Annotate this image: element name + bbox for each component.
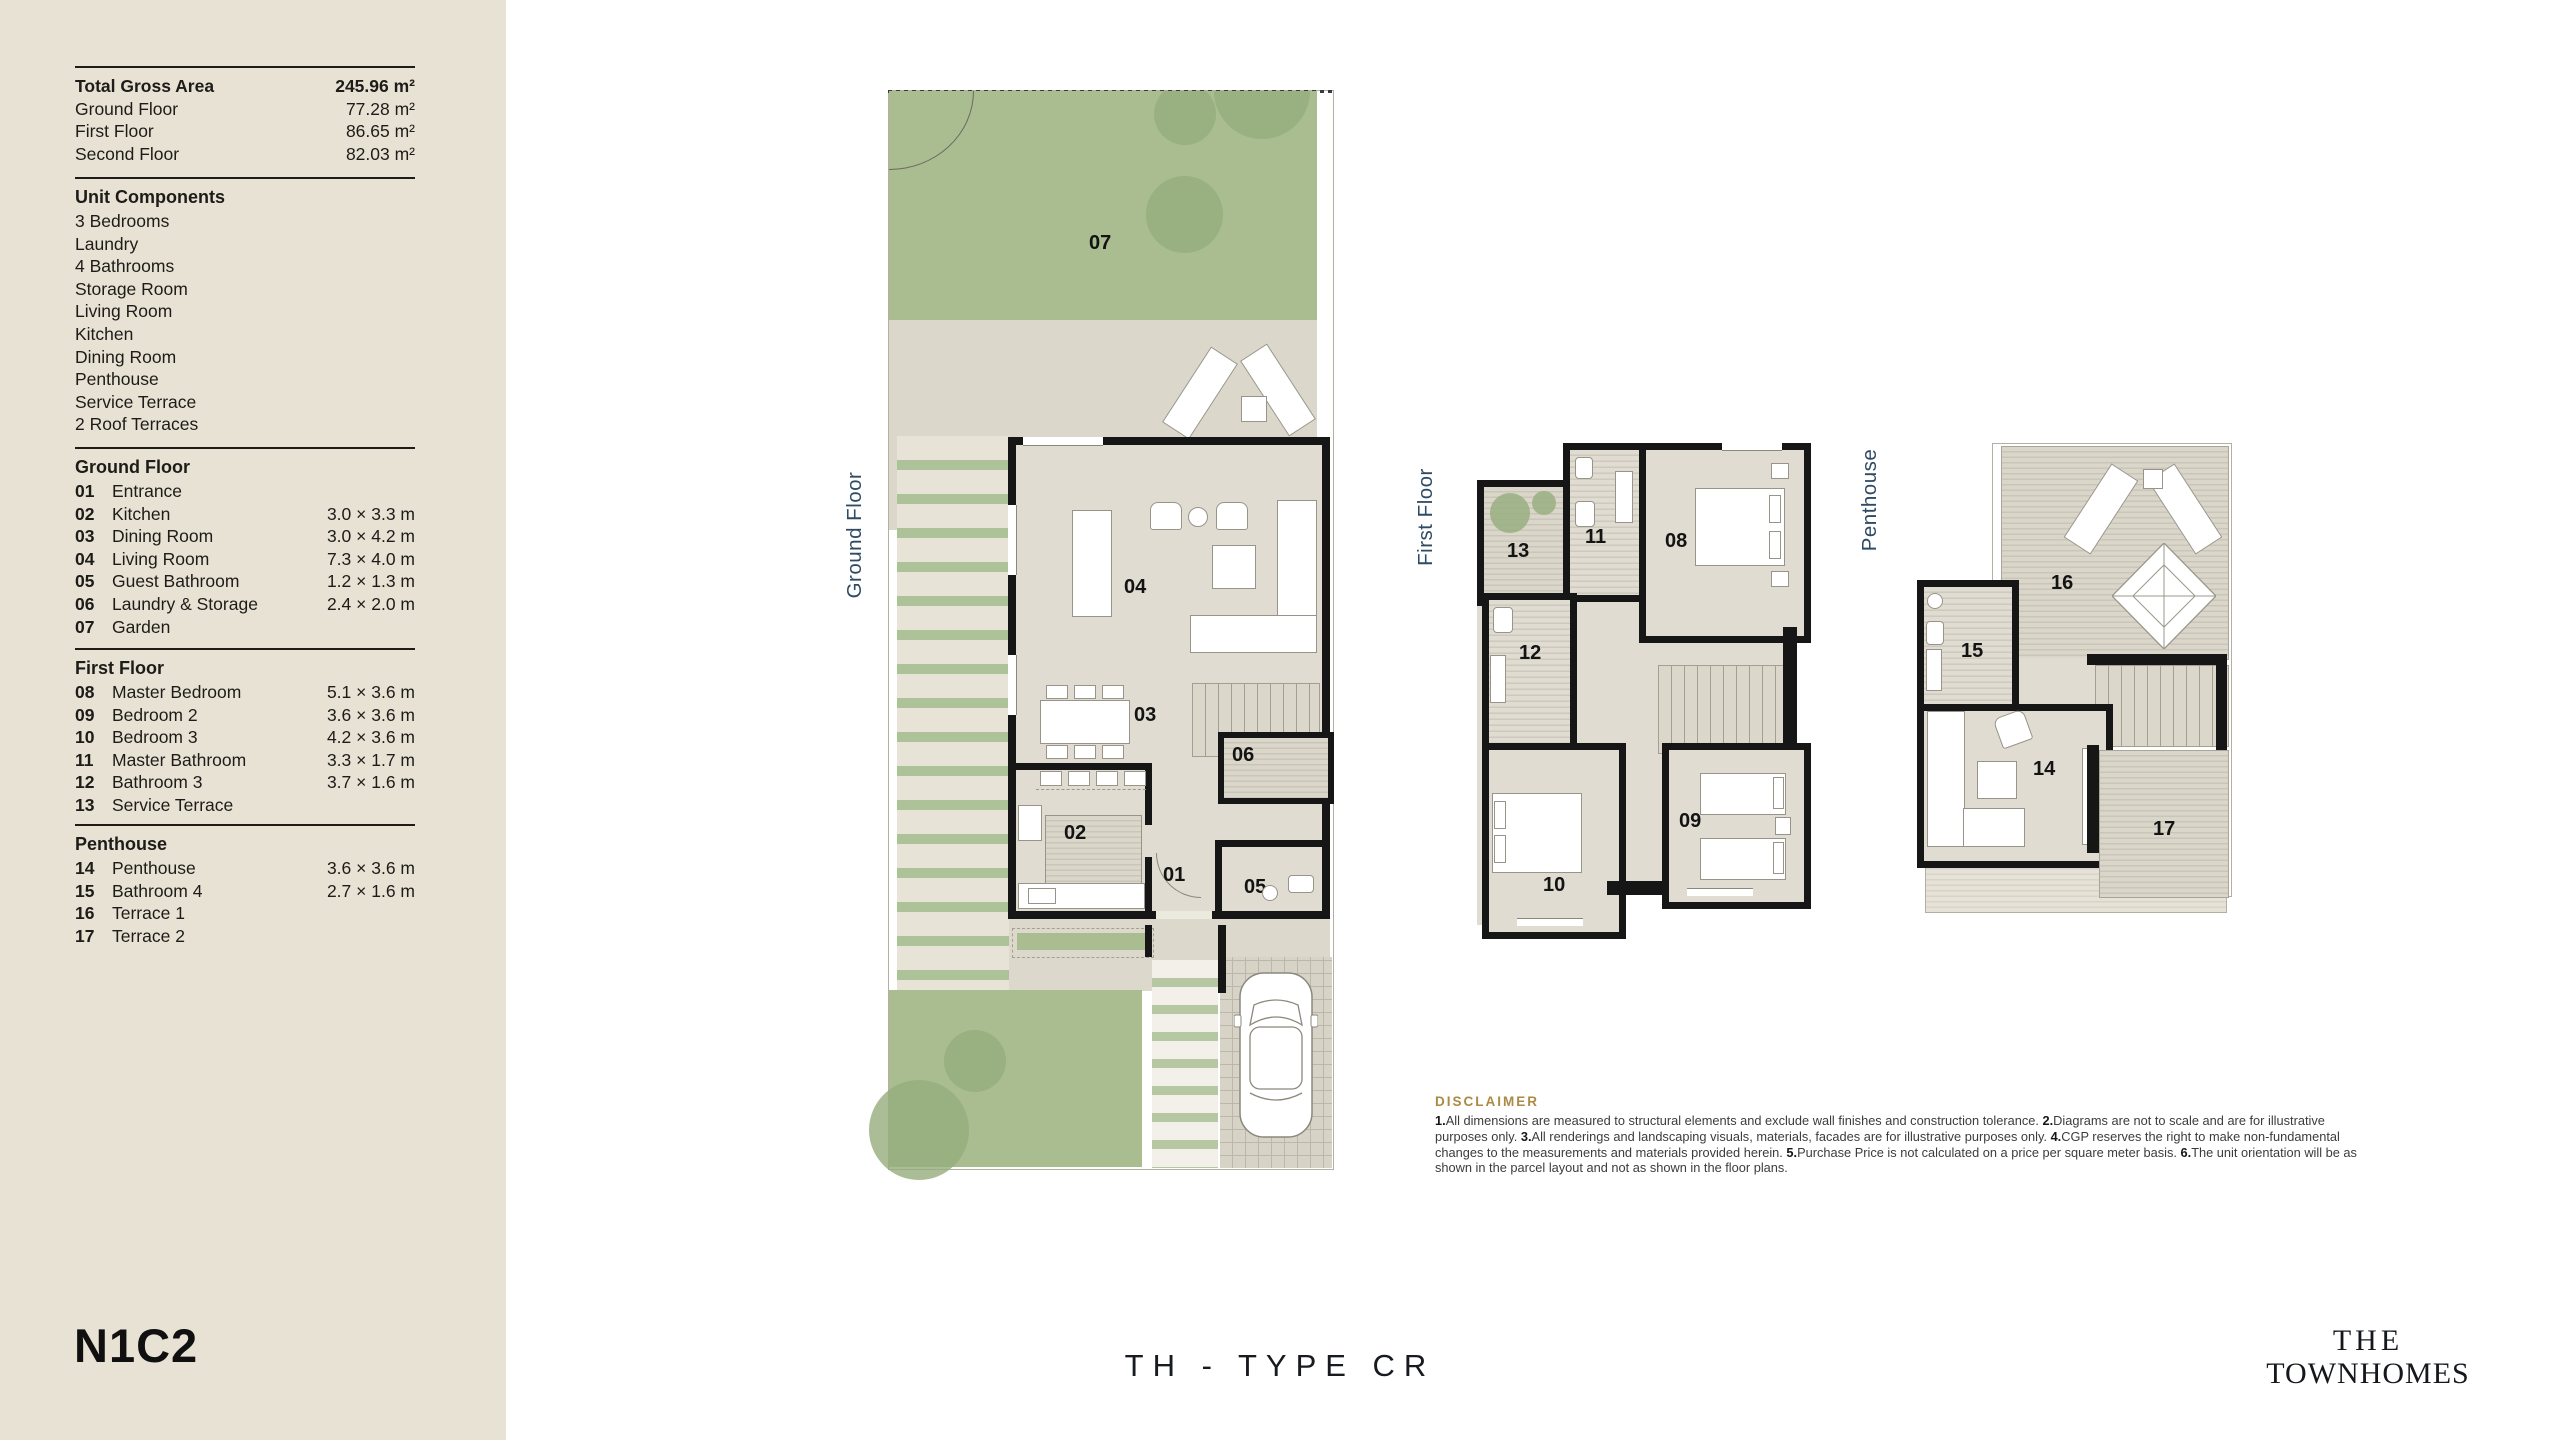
room-number-service-terrace: 13 [1507, 541, 1529, 561]
dining-chair [1074, 745, 1096, 759]
bar-stool [1068, 771, 1090, 786]
bar-stool [1124, 771, 1146, 786]
pillow [1773, 842, 1784, 874]
unit-type-label: TH - TYPE CR [1030, 1348, 1530, 1384]
dining-chair [1046, 685, 1068, 699]
room-number-master-bath: 11 [1585, 527, 1606, 547]
unit-code: N1C2 [74, 1318, 198, 1373]
room-name: Garden [112, 616, 407, 639]
room-name: Service Terrace [112, 794, 407, 817]
room-dims: 3.0 × 3.3 m [327, 503, 415, 526]
room-number-bathroom3: 12 [1519, 643, 1541, 663]
component-item: 4 Bathrooms [75, 255, 415, 278]
room-dims: 3.0 × 4.2 m [327, 525, 415, 548]
bar-stool [1096, 771, 1118, 786]
tree [944, 1030, 1006, 1092]
patio-table [1241, 396, 1267, 422]
stair-wall [1783, 627, 1797, 749]
room-name: Bathroom 4 [112, 880, 319, 903]
bath-wall [1215, 840, 1322, 847]
penthouse-plan: 16 15 14 17 [1917, 443, 2230, 913]
area-value: 245.96 m² [335, 75, 415, 98]
brand-logo: THE TOWNHOMES [2243, 1324, 2493, 1390]
brochure-page: Total Gross Area 245.96 m² Ground Floor … [0, 0, 2560, 1440]
disclaimer-item-number: 1. [1435, 1113, 1446, 1128]
pillow [1773, 777, 1784, 809]
window-gap [1517, 918, 1583, 926]
room-number: 09 [75, 704, 112, 727]
room-number-terrace1: 16 [2051, 573, 2073, 593]
room-number: 12 [75, 771, 112, 794]
armchair [1216, 502, 1248, 530]
chaise-sofa [1072, 510, 1112, 617]
room-row: 04Living Room7.3 × 4.0 m [75, 548, 415, 571]
planter-green [1017, 933, 1146, 950]
area-value: 82.03 m² [346, 143, 415, 166]
disclaimer-item-number: 2. [2042, 1113, 2053, 1128]
plant [1532, 491, 1556, 515]
coffee-table [1977, 761, 2017, 799]
room-number: 01 [75, 480, 112, 503]
room-number-master-bedroom: 08 [1665, 531, 1687, 551]
room-dims: 3.6 × 3.6 m [327, 704, 415, 727]
armchair [1150, 502, 1182, 530]
component-item: Kitchen [75, 323, 415, 346]
coffee-table [1212, 545, 1256, 589]
patio-table [2143, 469, 2163, 489]
room-number-garden: 07 [1089, 233, 1111, 253]
room-dims: 2.4 × 2.0 m [327, 593, 415, 616]
tree [1154, 91, 1216, 145]
vanity [1615, 471, 1633, 523]
window-gap [1023, 437, 1103, 446]
l-sofa-horizontal [1190, 615, 1317, 653]
window-gap [1687, 888, 1753, 896]
nightstand [1775, 817, 1791, 835]
room-number-bathroom4: 15 [1961, 641, 1983, 661]
pergola [2112, 543, 2216, 649]
room-number: 06 [75, 593, 112, 616]
room-dims: 3.6 × 3.6 m [327, 857, 415, 880]
room-number: 04 [75, 548, 112, 571]
component-item: 3 Bedrooms [75, 210, 415, 233]
tree [1146, 176, 1223, 253]
disclaimer-item-number: 5. [1786, 1145, 1797, 1160]
dining-table [1040, 700, 1130, 744]
room-name: Laundry & Storage [112, 593, 319, 616]
side-path-stripes [897, 436, 1009, 990]
kitchen-wall [1145, 857, 1152, 911]
bath-wall [1215, 847, 1222, 911]
sink [1028, 888, 1056, 904]
basin [1262, 885, 1278, 901]
room-number: 13 [75, 794, 112, 817]
house-ground: 04 03 06 02 01 [1008, 437, 1330, 919]
garden-gate-arc [889, 91, 974, 170]
room-number-terrace2: 17 [2153, 819, 2175, 839]
penthouse-section: Penthouse 14Penthouse3.6 × 3.6 m 15Bathr… [75, 824, 415, 947]
laundry-room [1218, 732, 1334, 804]
room-dims: 5.1 × 3.6 m [327, 681, 415, 704]
sidebar: Total Gross Area 245.96 m² Ground Floor … [0, 0, 506, 1440]
window-gap [1008, 505, 1017, 575]
first-floor-plan: 13 11 08 12 10 09 [1477, 443, 1797, 925]
l-sofa-vertical [1927, 711, 1965, 847]
toilet [1493, 607, 1513, 633]
stove [1018, 805, 1042, 841]
pillow [1494, 801, 1506, 829]
area-label: Second Floor [75, 143, 179, 166]
room-number-kitchen: 02 [1064, 823, 1086, 843]
toilet [1926, 621, 1944, 645]
room-number-living: 04 [1124, 577, 1146, 597]
room-number: 10 [75, 726, 112, 749]
room-name: Kitchen [112, 503, 319, 526]
room-dims: 1.2 × 1.3 m [327, 570, 415, 593]
entry-wall-stub [1145, 925, 1152, 957]
unit-components-section: Unit Components 3 Bedrooms Laundry 4 Bat… [75, 177, 415, 436]
pillow [1769, 531, 1781, 559]
disclaimer-item-number: 3. [1521, 1129, 1532, 1144]
room-row: 13Service Terrace [75, 794, 415, 817]
pillow [1494, 835, 1506, 863]
planter-bed [1012, 928, 1154, 958]
room-number-laundry: 06 [1232, 745, 1254, 765]
area-row: Ground Floor 77.28 m² [75, 98, 415, 121]
side-table [1188, 507, 1208, 527]
basin [1927, 593, 1943, 609]
area-value: 77.28 m² [346, 98, 415, 121]
room-number-entrance: 01 [1163, 865, 1185, 885]
room-name: Bedroom 2 [112, 704, 319, 727]
section-title: First Floor [75, 657, 415, 680]
dining-chair [1074, 685, 1096, 699]
stair-wall [2087, 654, 2227, 665]
room-row: 03Dining Room3.0 × 4.2 m [75, 525, 415, 548]
room-dims: 7.3 × 4.0 m [327, 548, 415, 571]
room-name: Living Room [112, 548, 319, 571]
car-illustration [1234, 969, 1318, 1141]
section-title: Ground Floor [75, 456, 415, 479]
disclaimer-item-number: 4. [2051, 1129, 2062, 1144]
room-number: 17 [75, 925, 112, 948]
component-item: 2 Roof Terraces [75, 413, 415, 436]
toilet [1288, 875, 1314, 893]
room-dims: 3.3 × 1.7 m [327, 749, 415, 772]
kitchen-bar-line [1036, 789, 1146, 790]
room-row: 17Terrace 2 [75, 925, 415, 948]
room-number: 16 [75, 902, 112, 925]
room-number-bedroom3: 10 [1543, 875, 1565, 895]
component-item: Living Room [75, 300, 415, 323]
room-dims: 2.7 × 1.6 m [327, 880, 415, 903]
window-gap [1008, 655, 1017, 715]
l-sofa-horizontal [1963, 808, 2025, 847]
wall-segment [2087, 745, 2099, 853]
room-name: Penthouse [112, 857, 319, 880]
room-number: 03 [75, 525, 112, 548]
driveway [1220, 957, 1332, 1168]
room-row: 16Terrace 1 [75, 902, 415, 925]
room-dims: 3.7 × 1.6 m [327, 771, 415, 794]
area-row: First Floor 86.65 m² [75, 120, 415, 143]
area-value: 86.65 m² [346, 120, 415, 143]
disclaimer-item-number: 6. [2181, 1145, 2192, 1160]
area-summary-section: Total Gross Area 245.96 m² Ground Floor … [75, 66, 415, 174]
room-number-penthouse: 14 [2033, 759, 2055, 779]
room-row: 06Laundry & Storage2.4 × 2.0 m [75, 593, 415, 616]
room-row: 07Garden [75, 616, 415, 639]
brand-line2: TOWNHOMES [2243, 1357, 2493, 1390]
room-number: 02 [75, 503, 112, 526]
window-gap [1722, 443, 1782, 451]
component-item: Laundry [75, 233, 415, 256]
room-row: 11Master Bathroom3.3 × 1.7 m [75, 749, 415, 772]
room-number: 15 [75, 880, 112, 903]
disclaimer: DISCLAIMER 1.All dimensions are measured… [1435, 1094, 2375, 1176]
room-row: 10Bedroom 34.2 × 3.6 m [75, 726, 415, 749]
nightstand [1771, 463, 1789, 479]
room-number: 05 [75, 570, 112, 593]
entry-wall-stub [1218, 925, 1226, 993]
component-item: Storage Room [75, 278, 415, 301]
stair-wall [2216, 654, 2227, 755]
room-row: 12Bathroom 33.7 × 1.6 m [75, 771, 415, 794]
room-name: Terrace 2 [112, 925, 407, 948]
area-label: Total Gross Area [75, 75, 214, 98]
room-row: 02Kitchen3.0 × 3.3 m [75, 503, 415, 526]
area-row: Total Gross Area 245.96 m² [75, 75, 415, 98]
staircase [1658, 665, 1785, 754]
sun-lounger [1240, 344, 1316, 437]
staircase [2095, 665, 2229, 747]
room-number: 14 [75, 857, 112, 880]
disclaimer-title: DISCLAIMER [1435, 1094, 2375, 1109]
brand-line1: THE [2243, 1324, 2493, 1357]
room-name: Bedroom 3 [112, 726, 319, 749]
room-name: Entrance [112, 480, 407, 503]
entry-walkway [1152, 960, 1218, 1168]
vanity [1490, 655, 1506, 703]
penthouse-plan-label: Penthouse [1858, 420, 1882, 580]
component-item: Dining Room [75, 346, 415, 369]
room-row: 14Penthouse3.6 × 3.6 m [75, 857, 415, 880]
sun-lounger [1162, 347, 1238, 440]
kitchen-wall [1016, 763, 1152, 770]
tree [1214, 91, 1310, 139]
kitchen-wall [1145, 763, 1152, 825]
component-item: Service Terrace [75, 391, 415, 414]
area-label: First Floor [75, 120, 154, 143]
room-number-dining: 03 [1134, 705, 1156, 725]
room-name: Master Bathroom [112, 749, 319, 772]
wall-segment [1607, 881, 1667, 895]
room-dims: 4.2 × 3.6 m [327, 726, 415, 749]
room-row: 09Bedroom 23.6 × 3.6 m [75, 704, 415, 727]
section-title: Unit Components [75, 186, 415, 209]
section-title: Penthouse [75, 833, 415, 856]
room-name: Terrace 1 [112, 902, 407, 925]
front-lawn [889, 990, 1142, 1167]
component-item: Penthouse [75, 368, 415, 391]
first-floor-section: First Floor 08Master Bedroom5.1 × 3.6 m … [75, 648, 415, 817]
toilet [1575, 501, 1595, 527]
first-floor-plan-label: First Floor [1414, 437, 1438, 597]
room-name: Master Bedroom [112, 681, 319, 704]
area-label: Ground Floor [75, 98, 178, 121]
room-name: Bathroom 3 [112, 771, 319, 794]
tree [869, 1080, 969, 1180]
dining-chair [1102, 685, 1124, 699]
ground-floor-plan: 07 [888, 90, 1335, 1170]
ground-floor-section: Ground Floor 01Entrance 02Kitchen3.0 × 3… [75, 447, 415, 638]
room-row: 15Bathroom 42.7 × 1.6 m [75, 880, 415, 903]
disclaimer-item-text: Purchase Price is not calculated on a pr… [1797, 1145, 2177, 1160]
basin [1575, 457, 1593, 479]
dining-chair [1102, 745, 1124, 759]
disclaimer-text: 1.All dimensions are measured to structu… [1435, 1113, 2375, 1176]
dining-chair [1046, 745, 1068, 759]
room-number-bedroom2: 09 [1679, 811, 1701, 831]
room-name: Guest Bathroom [112, 570, 319, 593]
kitchen-island [1045, 815, 1142, 890]
room-number: 07 [75, 616, 112, 639]
room-row: 08Master Bedroom5.1 × 3.6 m [75, 681, 415, 704]
room-row: 01Entrance [75, 480, 415, 503]
area-row: Second Floor 82.03 m² [75, 143, 415, 175]
garden: 07 [889, 91, 1317, 320]
room-number: 08 [75, 681, 112, 704]
disclaimer-item-text: All renderings and landscaping visuals, … [1532, 1129, 2047, 1144]
disclaimer-item-text: All dimensions are measured to structura… [1446, 1113, 2039, 1128]
bar-stool [1040, 771, 1062, 786]
plant [1490, 493, 1530, 533]
pillow [1769, 495, 1781, 523]
room-number: 11 [75, 749, 112, 772]
room-name: Dining Room [112, 525, 319, 548]
vanity [1926, 649, 1942, 691]
room-row: 05Guest Bathroom1.2 × 1.3 m [75, 570, 415, 593]
entrance-door-gap [1156, 911, 1212, 919]
ground-floor-plan-label: Ground Floor [843, 455, 867, 615]
nightstand [1771, 571, 1789, 587]
